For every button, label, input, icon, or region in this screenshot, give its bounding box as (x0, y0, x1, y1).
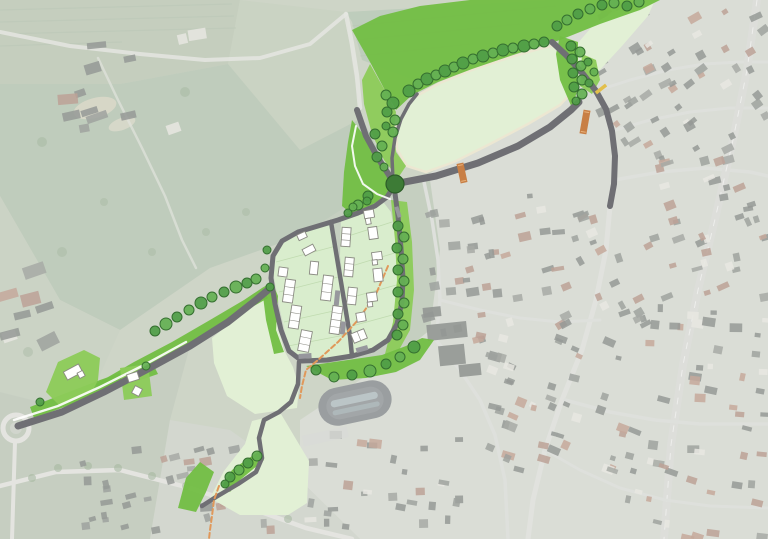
tree (399, 298, 409, 308)
tree (622, 1, 632, 11)
tree (584, 58, 592, 66)
tree (590, 68, 598, 76)
tree (172, 312, 182, 322)
house-footprint (356, 312, 366, 322)
terraced-row-footprint (347, 287, 358, 305)
house-footprint (368, 226, 379, 239)
tree (370, 129, 380, 139)
building-outline (309, 261, 318, 275)
tree (311, 365, 321, 375)
tree (408, 341, 420, 353)
tree (381, 359, 391, 369)
building-outline (368, 226, 379, 239)
tree (399, 276, 409, 286)
parking-bar (298, 353, 311, 359)
house-footprint (309, 261, 318, 275)
building-wing (367, 302, 373, 308)
tree (329, 372, 339, 382)
tree (572, 97, 580, 105)
tree (575, 47, 585, 57)
tree (395, 352, 405, 362)
tree (234, 465, 244, 475)
tree (392, 330, 402, 340)
tree (573, 9, 583, 19)
building-outline (373, 268, 383, 282)
tree (597, 0, 607, 10)
tree (488, 48, 498, 58)
tree (609, 0, 619, 8)
tree (347, 370, 357, 380)
terraced-row-footprint (344, 257, 355, 277)
building-wing (372, 260, 378, 266)
tree (569, 82, 579, 92)
building-outline (366, 292, 377, 302)
tree (242, 278, 252, 288)
tree (266, 283, 274, 291)
tree (392, 243, 402, 253)
building-outline (278, 267, 288, 277)
tree (468, 54, 478, 64)
tree (243, 458, 253, 468)
tree (219, 287, 229, 297)
building-outline (363, 209, 374, 219)
building-outline (356, 312, 366, 322)
tree (377, 141, 387, 151)
tree (150, 326, 160, 336)
house-footprint (373, 268, 383, 282)
building-outline (341, 227, 351, 247)
tree (207, 292, 217, 302)
tree (251, 274, 261, 284)
tree (252, 451, 262, 461)
tree (390, 115, 400, 125)
building-wing (365, 218, 371, 225)
building-outline (344, 257, 355, 277)
tree (230, 281, 242, 293)
tree (364, 365, 376, 377)
masterplan-aerial-map (0, 0, 768, 539)
terraced-row-footprint (341, 227, 351, 247)
tree (552, 21, 562, 31)
tree (497, 44, 509, 56)
tree (195, 297, 207, 309)
tree (399, 232, 409, 242)
tree (398, 254, 408, 264)
tree (518, 40, 530, 52)
tree (393, 309, 403, 319)
tree (380, 163, 388, 171)
tree (142, 362, 150, 370)
tree (388, 127, 398, 137)
tree (261, 264, 269, 272)
tree (562, 15, 572, 25)
tree (457, 57, 469, 69)
tree (36, 398, 44, 406)
tree (372, 152, 382, 162)
tree (363, 197, 371, 205)
tree (585, 4, 595, 14)
tree (529, 39, 539, 49)
tree (568, 68, 578, 78)
house-footprint (278, 267, 288, 277)
tree (393, 287, 403, 297)
junction-landmark-tree (386, 175, 404, 193)
tree (403, 85, 415, 97)
tree (160, 318, 172, 330)
tree (184, 305, 194, 315)
tree (566, 41, 576, 51)
tree (567, 54, 577, 64)
tree (393, 221, 403, 231)
tree (585, 79, 593, 87)
tree (382, 107, 392, 117)
tree (539, 37, 549, 47)
tree (221, 480, 229, 488)
tree (349, 203, 357, 211)
tree (263, 246, 271, 254)
tree (634, 0, 644, 7)
tree (508, 43, 518, 53)
tree (477, 50, 489, 62)
tree (393, 265, 403, 275)
tree (398, 320, 408, 330)
